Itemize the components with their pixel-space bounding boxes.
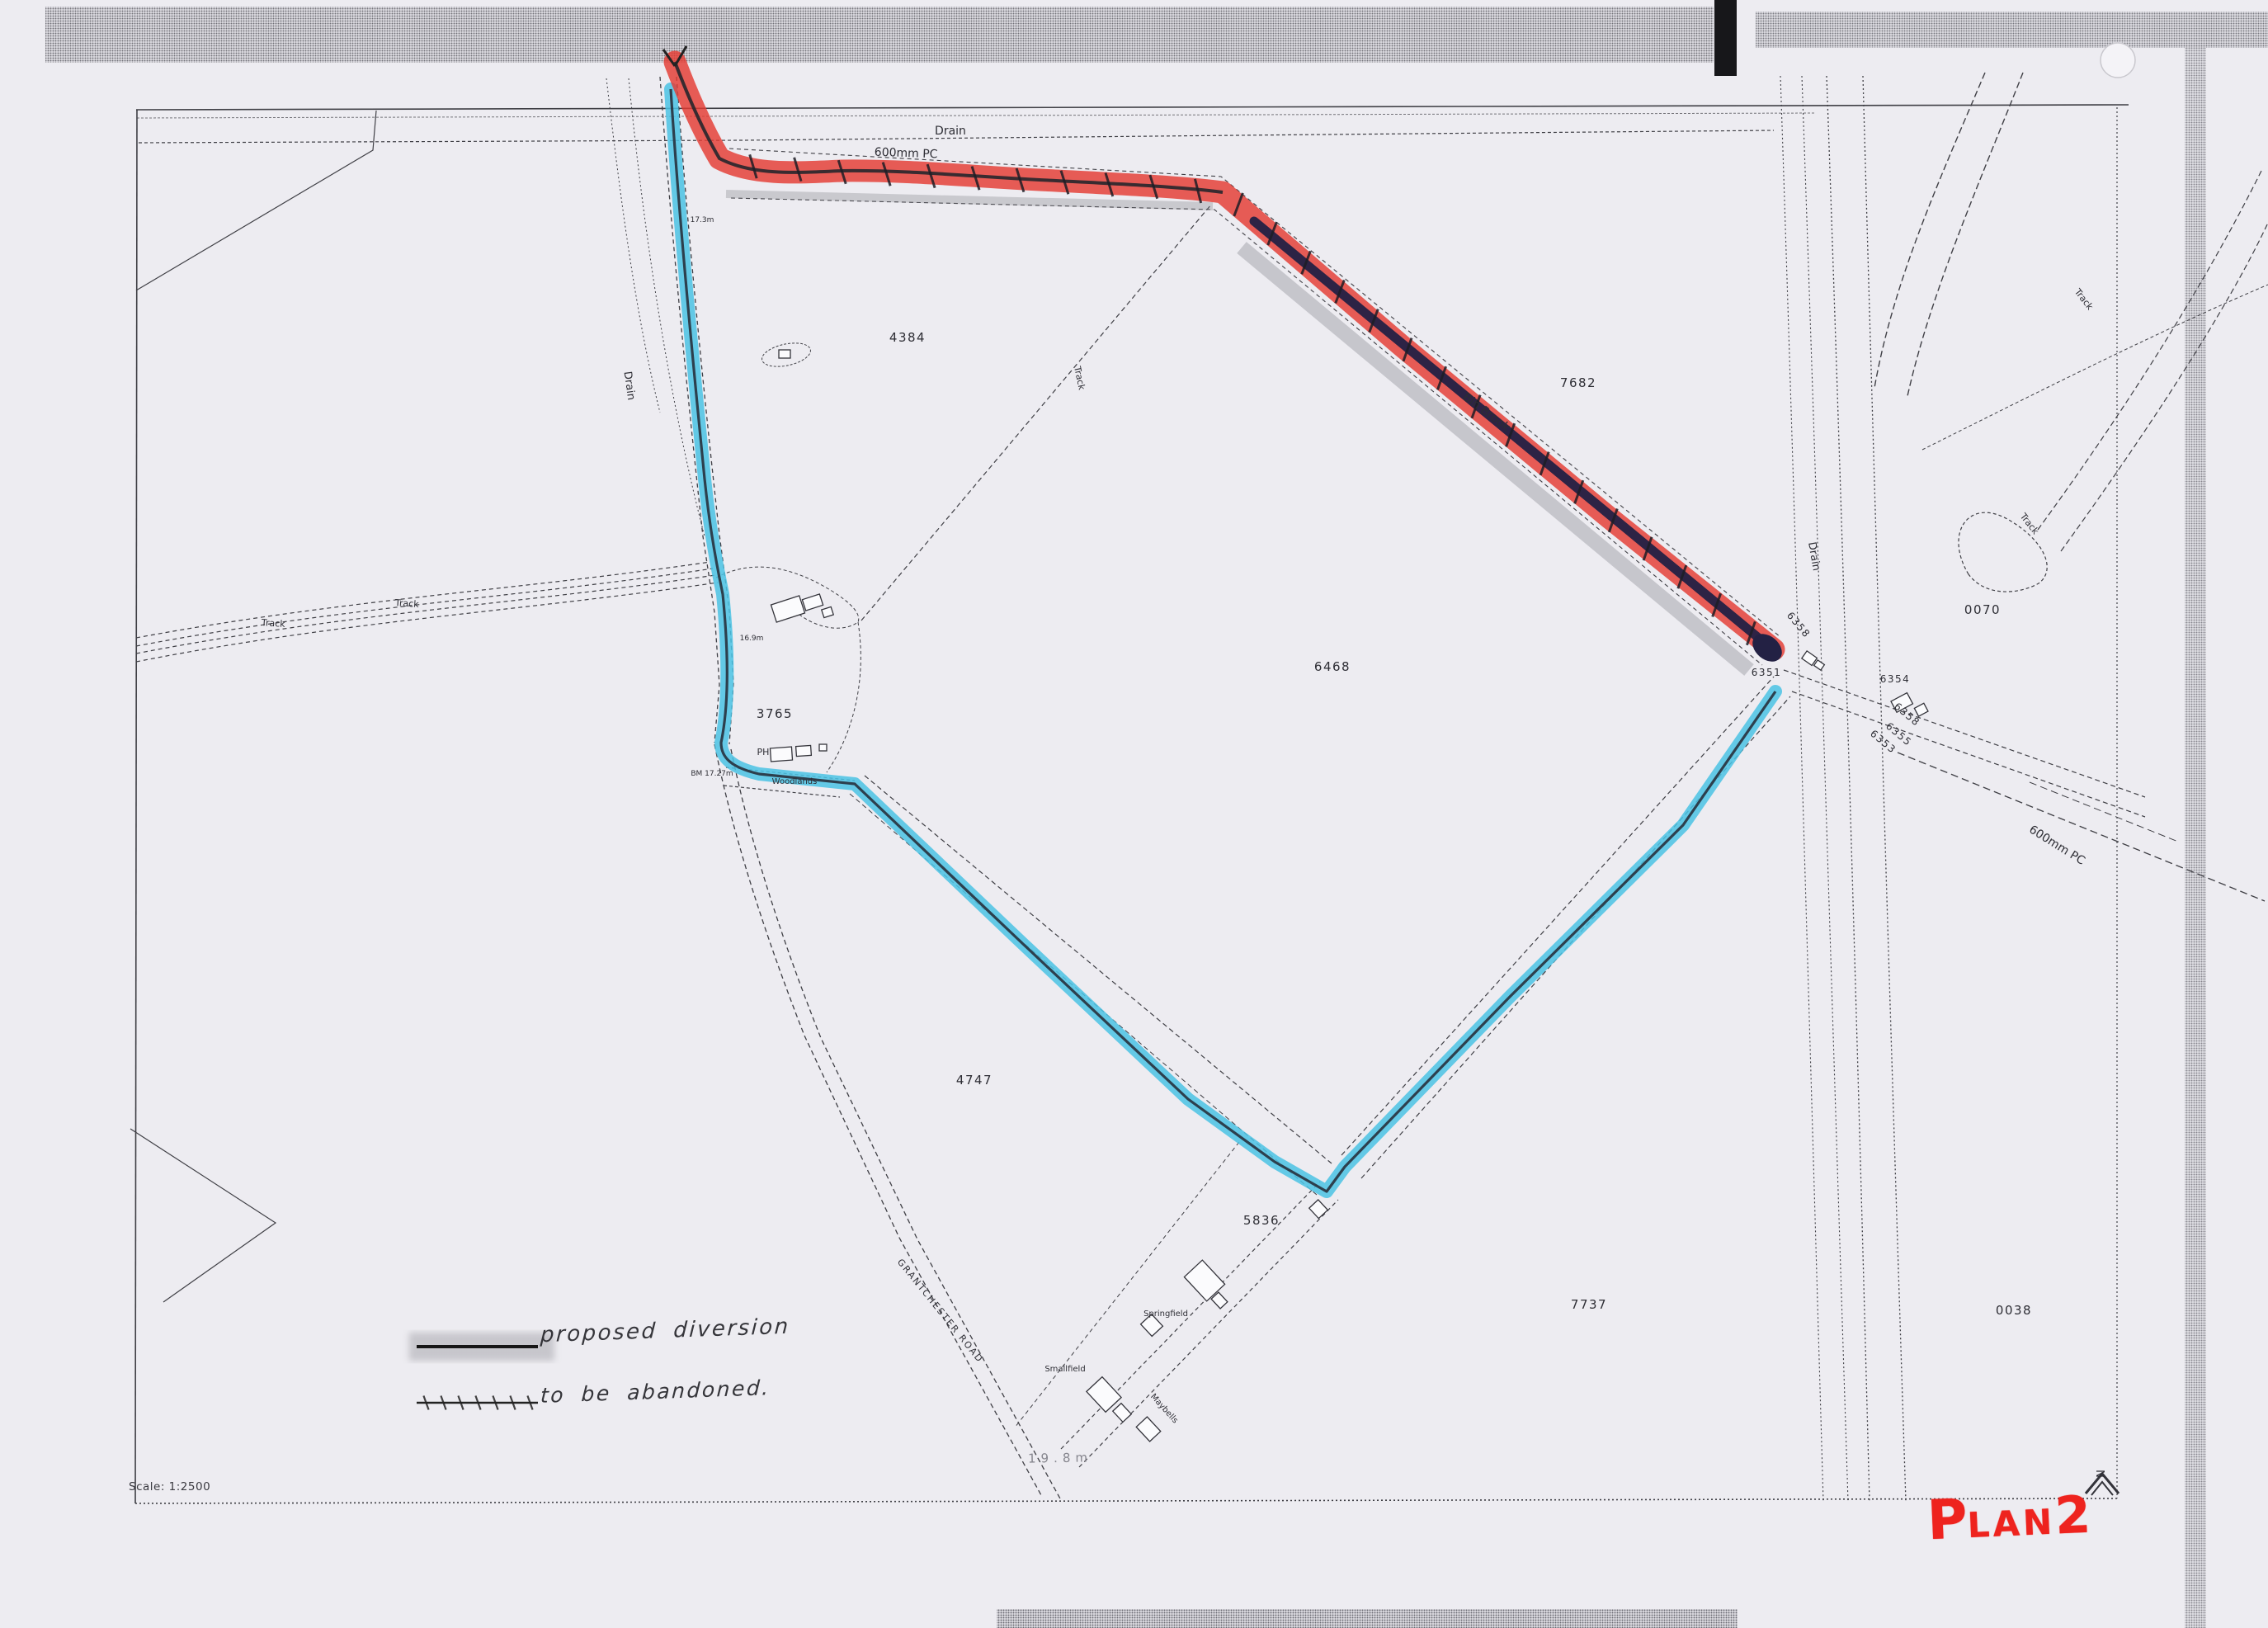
parcel-number: 5836 <box>1243 1213 1280 1228</box>
map-label: Springfield <box>1143 1309 1188 1319</box>
parcel-number: 6468 <box>1314 659 1351 674</box>
parcel-number: 0070 <box>1964 602 2001 617</box>
map-label: 16.9m <box>740 635 764 643</box>
parcel-number: 7682 <box>1560 375 1596 390</box>
plan-title-mid: LAN <box>1967 1502 2056 1546</box>
plan-title-lead: P <box>1926 1487 1969 1552</box>
map-label: Track <box>260 617 285 630</box>
parcel-number: 7737 <box>1571 1297 1607 1312</box>
plan-title-handwriting: PLAN2 <box>1926 1482 2091 1553</box>
scan-black-bar <box>1714 0 1737 76</box>
pond-side-building <box>779 350 790 358</box>
map-label: Drain <box>935 125 966 138</box>
scanned-plan-sheet: 4384768200706468376547475836773700386354… <box>0 0 2268 1628</box>
plan-title-tail: 2 <box>2053 1484 2091 1546</box>
map-label: Smallfield <box>1044 1365 1085 1374</box>
plan-map: 4384768200706468376547475836773700386354… <box>0 0 2268 1628</box>
pencil-measurement-note: 19.8m <box>1028 1450 1092 1465</box>
parcel-number: 4384 <box>889 330 926 345</box>
map-label: PH <box>757 747 770 757</box>
scan-band-right-edge <box>2185 46 2206 1628</box>
paper-background <box>0 0 2268 1628</box>
scan-band-bottom <box>997 1609 1738 1628</box>
punch-hole <box>2101 43 2135 78</box>
scan-band-top-right <box>1756 12 2268 48</box>
scale-label: Scale: 1:2500 <box>129 1480 210 1494</box>
map-label: Woodlands <box>772 777 818 786</box>
ph-building <box>796 745 812 756</box>
map-label: N <box>2096 1470 2108 1478</box>
parcel-number: 0038 <box>1996 1303 2032 1318</box>
map-label: Track <box>394 597 419 610</box>
scan-band-top <box>45 7 1714 63</box>
map-label: 600mm PC <box>875 146 938 162</box>
parcel-number: 3765 <box>757 706 793 721</box>
map-label: BM 17.27m <box>691 770 733 778</box>
parcel-number: 6351 <box>1752 667 1782 678</box>
parcel-number: 6354 <box>1880 673 1911 685</box>
ph-building <box>770 747 792 762</box>
parcel-number: 4747 <box>956 1073 993 1088</box>
ph-building <box>819 744 827 751</box>
map-label: 17.3m <box>691 216 714 224</box>
